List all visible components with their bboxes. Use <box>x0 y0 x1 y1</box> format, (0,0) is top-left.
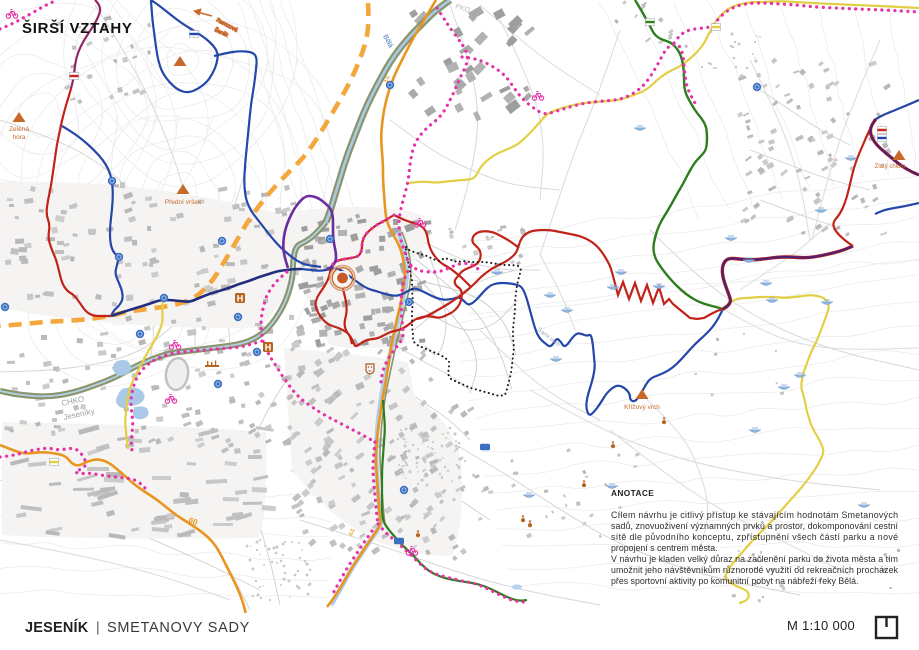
svg-text:Přední vršek: Přední vršek <box>165 199 202 206</box>
svg-text:H: H <box>237 293 244 303</box>
svg-text:M 1:10 000: M 1:10 000 <box>787 618 855 633</box>
svg-text:Křížový vrch: Křížový vrch <box>624 404 660 411</box>
svg-text:Zelená: Zelená <box>9 126 29 133</box>
svg-text:sadů, znovuoživení významných: sadů, znovuoživení významných prvků a pr… <box>611 521 899 531</box>
svg-text:|: | <box>96 619 100 635</box>
svg-text:sítě dle původního konceptu, z: sítě dle původního konceptu, zpřístupněn… <box>611 532 898 542</box>
svg-text:umožnit jeho návštěvníkům různ: umožnit jeho návštěvníkům různorodé využ… <box>611 565 899 575</box>
svg-text:JESENÍK: JESENÍK <box>25 619 89 636</box>
svg-text:ANOTACE: ANOTACE <box>611 488 654 498</box>
svg-text:SMETANOVY SADY: SMETANOVY SADY <box>107 620 250 636</box>
svg-text:Zlatý chlum: Zlatý chlum <box>875 164 906 170</box>
svg-text:V návrhu je kladen velký důraz: V návrhu je kladen velký důraz na začlen… <box>611 554 898 564</box>
svg-text:hora: hora <box>12 134 25 141</box>
svg-text:propojení s centrem města.: propojení s centrem města. <box>611 543 718 553</box>
svg-text:Cílem návrhu je citlivý přístu: Cílem návrhu je citlivý přístup ke stáva… <box>611 510 898 520</box>
svg-text:ŠIRŠÍ VZTAHY: ŠIRŠÍ VZTAHY <box>22 19 133 37</box>
svg-text:H: H <box>265 342 272 352</box>
svg-text:přes sportovní aktivity po kom: přes sportovní aktivity po komunitní pob… <box>611 576 858 586</box>
